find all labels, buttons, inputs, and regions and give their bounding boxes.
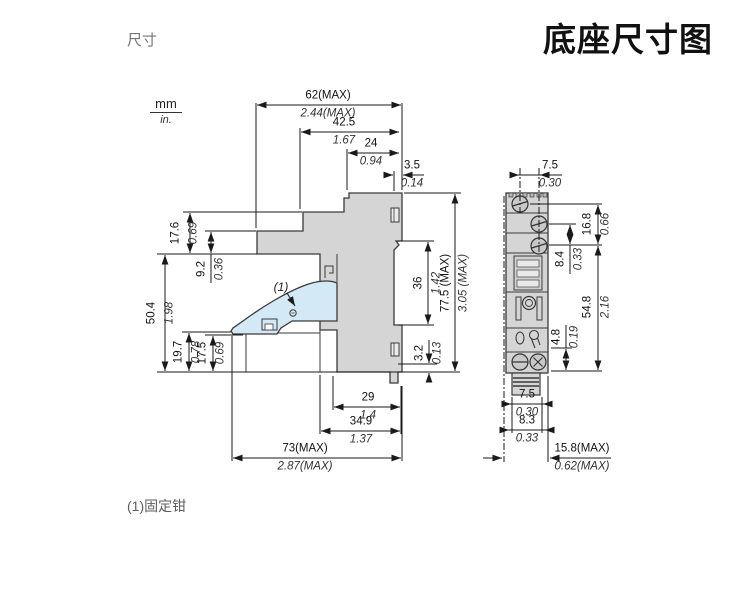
units-in: in. bbox=[150, 113, 182, 126]
front-view-body bbox=[506, 193, 548, 395]
base-dimension-diagram-page: 底座尺寸图 尺寸 mm in. (1)固定钳 (1) 62(MAX) 2.44(… bbox=[0, 0, 749, 601]
side-view-dimensions bbox=[157, 103, 461, 461]
footnote-fixing-clamp: (1)固定钳 bbox=[127, 496, 186, 516]
units-mm: mm bbox=[150, 96, 182, 113]
section-label: 尺寸 bbox=[127, 29, 157, 50]
dimension-drawing bbox=[0, 0, 749, 601]
callout-1-label: (1) bbox=[274, 280, 289, 294]
label-holder bbox=[514, 256, 542, 290]
units-legend: mm in. bbox=[150, 96, 182, 126]
side-view-body bbox=[231, 193, 402, 383]
din-foot bbox=[512, 373, 540, 395]
rail-slot-top bbox=[391, 208, 399, 222]
rail-slot-bottom bbox=[391, 343, 399, 356]
page-title: 底座尺寸图 bbox=[543, 13, 713, 61]
